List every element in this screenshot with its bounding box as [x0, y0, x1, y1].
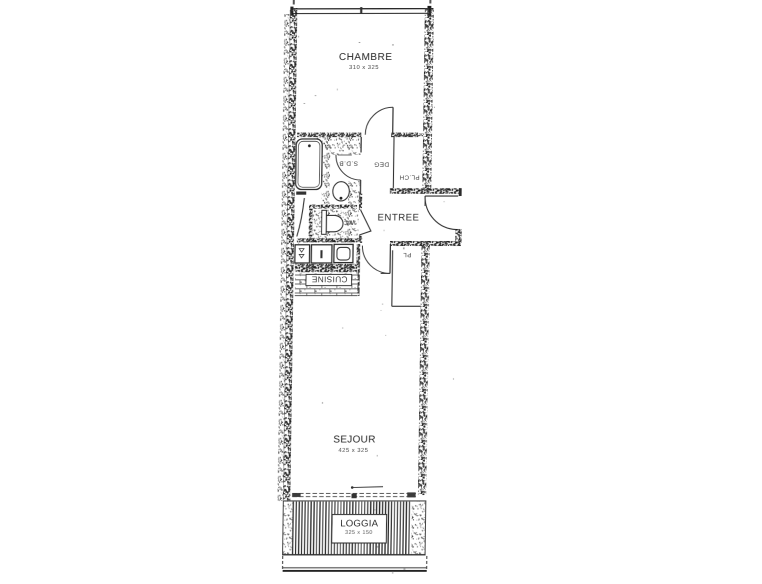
svg-text:CUISINE: CUISINE: [311, 275, 347, 285]
svg-text:WC: WC: [343, 218, 355, 225]
svg-text:ENTREE: ENTREE: [377, 213, 419, 224]
svg-text:PL: PL: [403, 251, 412, 258]
svg-text:425 x 325: 425 x 325: [338, 447, 368, 454]
svg-text:310 x 325: 310 x 325: [349, 64, 379, 71]
svg-text:CHAMBRE: CHAMBRE: [339, 52, 393, 63]
svg-text:SEJOUR: SEJOUR: [333, 435, 376, 446]
svg-text:LOGGIA: LOGGIA: [340, 519, 379, 530]
svg-text:PL.CH: PL.CH: [399, 174, 419, 181]
svg-text:DEG: DEG: [374, 160, 389, 167]
svg-text:S.D.B: S.D.B: [339, 159, 358, 166]
svg-text:325 x 150: 325 x 150: [345, 530, 373, 536]
